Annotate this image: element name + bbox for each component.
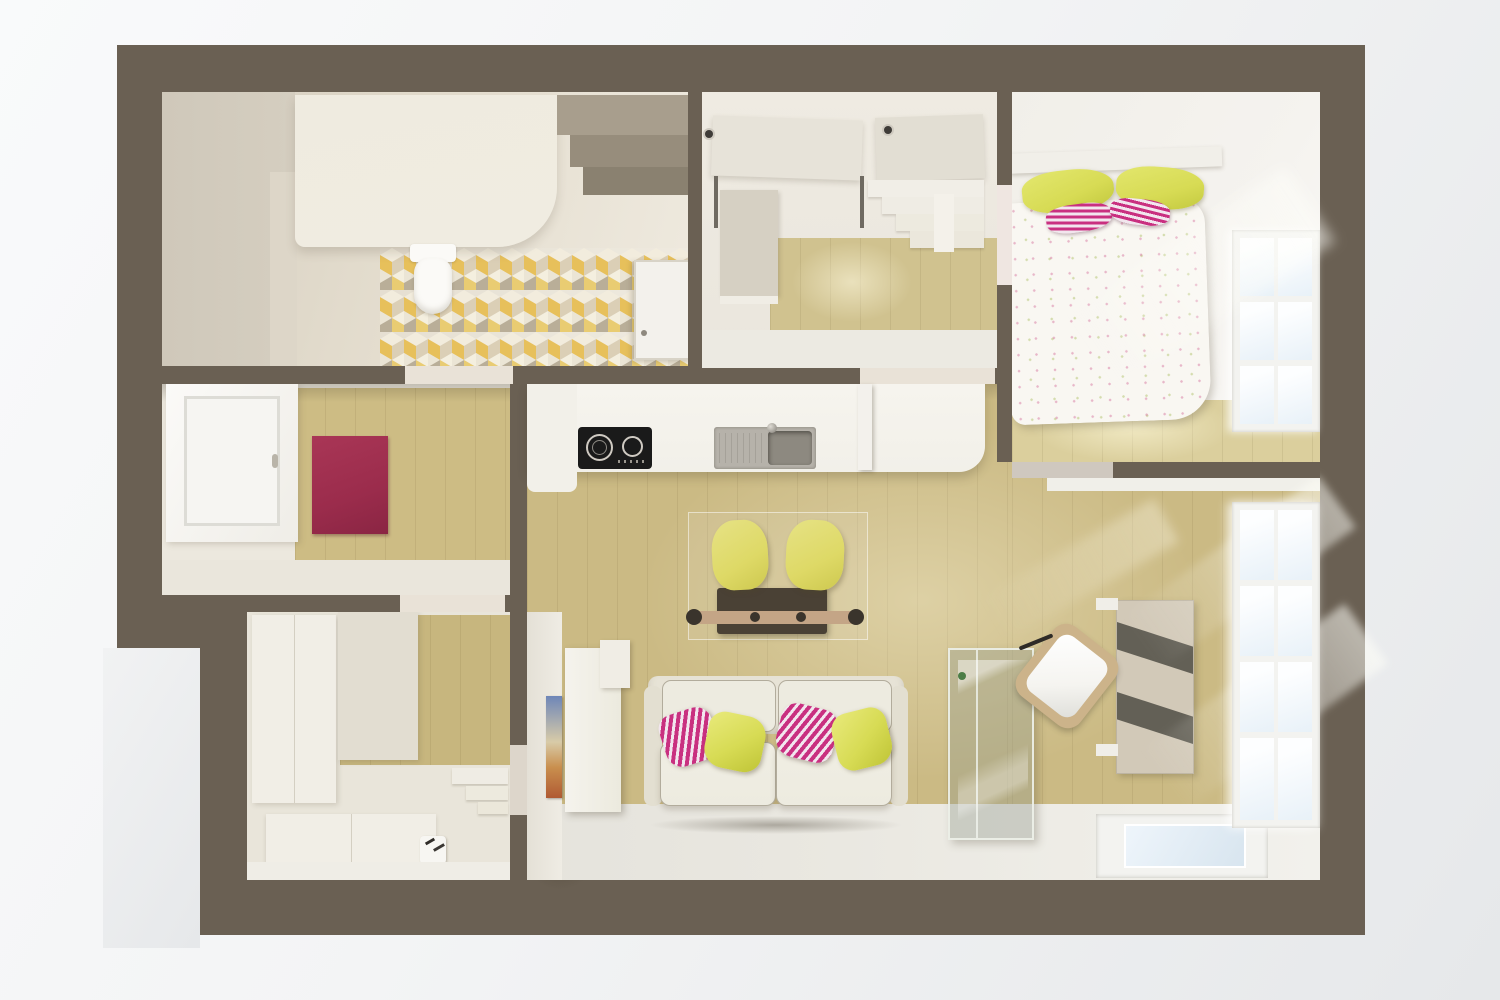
window-pane [1278, 366, 1312, 424]
hall-wardrobe-sill [720, 296, 778, 304]
bed-headboard [1010, 146, 1223, 173]
entry-hall [702, 92, 997, 368]
sofa [644, 672, 908, 822]
wall-bathroom-hall [688, 92, 702, 384]
shoe-step-2 [882, 197, 984, 214]
window-handle-icon [272, 454, 278, 468]
bench-knob-mid1 [750, 612, 760, 622]
window-pane [1278, 302, 1312, 360]
bathroom-shelf-2 [570, 135, 688, 167]
hall-bottom-wall-face [702, 330, 997, 368]
vanity-unit [295, 95, 557, 247]
bed-duvet [1004, 197, 1212, 426]
window-pane [1278, 662, 1312, 732]
storage-room [247, 612, 510, 880]
cooktop [578, 427, 652, 469]
leftrooms-door-sill [400, 595, 505, 612]
hall-ledge [934, 194, 954, 252]
desk-shadow-stripe-2 [1116, 690, 1194, 746]
window-pane [1278, 738, 1312, 820]
cooktop-controls [618, 460, 646, 463]
sink-basin [768, 431, 812, 465]
storage-bottom-face [247, 862, 510, 880]
storage-door-gap [510, 745, 527, 815]
window-pane [1240, 238, 1274, 296]
dining-chair-1 [710, 519, 770, 592]
red-rug [312, 436, 388, 534]
desk-shadow-stripe-1 [1116, 620, 1194, 676]
bathroom-shelf-1 [557, 95, 688, 135]
left-window-frame [184, 396, 280, 526]
glass-cabinet-item [958, 672, 966, 680]
window-pane [1240, 510, 1274, 580]
kitchen-counter-return [527, 384, 577, 492]
sink-drainboard [719, 433, 763, 463]
hall-door-sill [860, 368, 995, 384]
window-room-bottom-face [162, 560, 510, 595]
exterior-notch [103, 648, 200, 948]
bathroom-wall-panel [270, 172, 297, 366]
window-room [162, 384, 510, 595]
left-window-unit [166, 384, 298, 542]
bathroom [162, 92, 688, 366]
corner-step-3 [478, 802, 508, 814]
corner-step-1 [452, 768, 508, 784]
window-pane [1278, 586, 1312, 656]
faucet-icon [767, 423, 777, 433]
bench-knob-right [848, 609, 864, 625]
toilet-bowl [414, 258, 452, 314]
living-window [1232, 502, 1320, 828]
burner-large-inner [592, 440, 607, 455]
window-pane [1278, 510, 1312, 580]
desk [1116, 600, 1194, 774]
sofa-armrest-right [890, 686, 908, 806]
hall-door-leaf-1 [711, 115, 863, 180]
floor-plan-render [0, 0, 1500, 1000]
bathroom-door [634, 260, 692, 360]
shoe-step-1 [868, 180, 984, 197]
storage-wardrobe-right [338, 612, 418, 760]
bedroom-door-gap [997, 185, 1012, 285]
bedroom [1012, 92, 1320, 462]
window-pane [1240, 366, 1274, 424]
bench-knob-mid2 [796, 612, 806, 622]
hall-floor [770, 238, 997, 330]
burner-small [622, 436, 643, 457]
hall-door-leaf-2 [875, 114, 985, 182]
bench-knob-left [686, 609, 702, 625]
small-cabinet [600, 640, 630, 688]
window-pane [1278, 238, 1312, 296]
window-pane [1240, 738, 1274, 820]
hall-wardrobe [720, 190, 778, 296]
storage-wardrobe-divider [294, 615, 295, 803]
window-pane [1240, 302, 1274, 360]
bathroom-door-handle [641, 330, 647, 336]
desk-shelf-tab-bottom [1096, 744, 1118, 756]
kitchen-right-ledge [1047, 478, 1320, 491]
door-hinge-icon [705, 130, 713, 138]
dining-chair-2 [784, 519, 846, 592]
window-pane [1240, 586, 1274, 656]
dining-bench-wood [694, 611, 858, 624]
sink [714, 427, 816, 469]
wall-art [546, 696, 562, 798]
bathroom-shelf-3 [583, 167, 688, 195]
storage-sideboard-divider [351, 814, 352, 868]
bedroom-door-sill-south [1012, 462, 1113, 478]
bedroom-window [1232, 230, 1320, 432]
corner-step-2 [466, 786, 508, 800]
hall-open-door-leaf [858, 384, 872, 470]
floor-window-pane [1124, 824, 1246, 868]
door-hinge-icon [884, 126, 892, 134]
desk-shelf-tab-top [1096, 598, 1118, 610]
door-hinge-stem [714, 176, 718, 228]
wall-step-lower-left [117, 598, 247, 648]
bathroom-door-sill [405, 366, 513, 384]
window-pane [1240, 662, 1274, 732]
wall-storage-living [510, 595, 527, 880]
door-hinge-stem [860, 176, 864, 228]
